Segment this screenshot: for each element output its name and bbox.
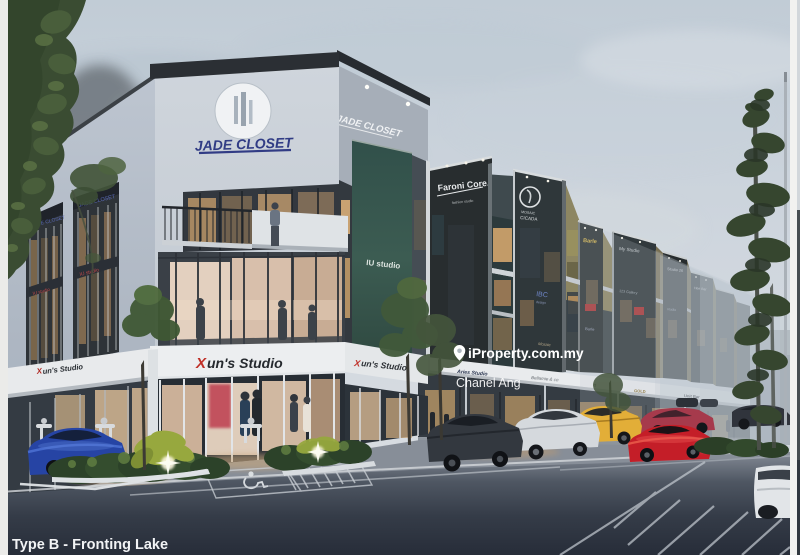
svg-text:un's Studio: un's Studio bbox=[207, 355, 283, 371]
svg-text:IBC: IBC bbox=[536, 291, 548, 299]
svg-text:X: X bbox=[195, 355, 207, 372]
svg-text:iProperty.com.my: iProperty.com.my bbox=[468, 346, 584, 361]
svg-text:Type B - Fronting Lake: Type B - Fronting Lake bbox=[12, 537, 168, 553]
svg-text:Chanel Ang: Chanel Ang bbox=[456, 376, 521, 390]
